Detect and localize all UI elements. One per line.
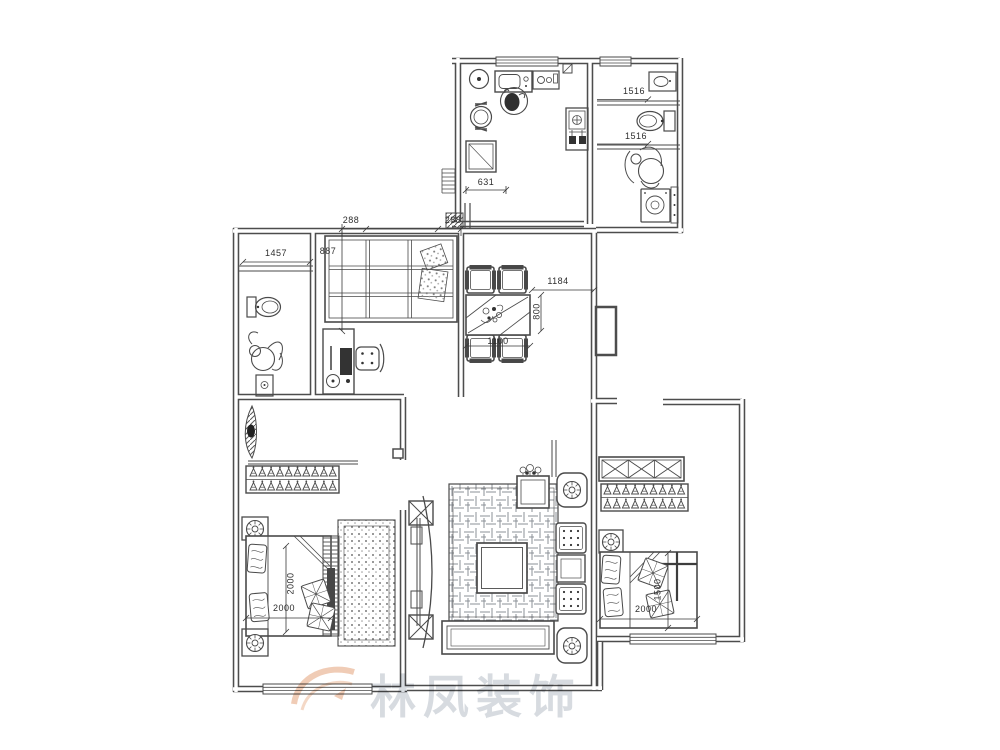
dim-label-bed-left-v: 2000 [286, 564, 297, 604]
tv-feature-wall [409, 496, 433, 648]
wardrobe-grid [325, 236, 457, 322]
side-table-plant [517, 465, 549, 509]
sofa [556, 523, 586, 614]
dining-chair [466, 266, 496, 294]
water-heater [566, 108, 588, 150]
dining-room [466, 266, 531, 363]
closet-hanger-rack [601, 484, 688, 511]
radiator [442, 169, 455, 193]
window-kitchen-top [496, 57, 558, 66]
dim-label-bed-right-length: 2000 [626, 604, 666, 615]
wardrobe-x-cabinet [599, 457, 684, 481]
tv-stand [442, 621, 554, 654]
dim-label-bath-top-lower: 1516 [608, 131, 664, 142]
lamp-icon [603, 534, 620, 551]
burner-icon [471, 102, 492, 131]
plush-toy [418, 268, 448, 301]
toilet-icon [247, 297, 281, 317]
pillow [603, 587, 623, 616]
dim-label-kitchen-door: 631 [468, 177, 504, 188]
door-jamb-notch [393, 449, 403, 458]
plant-icon [520, 465, 541, 477]
dim-label-bath-top-upper: 1516 [606, 86, 662, 97]
dim-label-wardrobe-depth: 887 [314, 246, 342, 257]
double-bed [600, 552, 697, 628]
shower-person-figure [625, 147, 663, 188]
dining-chair [498, 266, 528, 294]
pipe-shaft-niche [596, 307, 616, 355]
bathroom-middle [247, 297, 282, 396]
lamp-icon [564, 638, 581, 655]
lamp-icon [564, 482, 581, 499]
dim-label-bed-left-h: 2000 [264, 603, 304, 614]
window-bedroom-right [630, 634, 716, 644]
coffee-table [477, 543, 527, 593]
dim-label-dining-width: 1184 [534, 276, 582, 287]
door-leaf-hatched [245, 406, 256, 458]
sofa-end-table [557, 473, 587, 507]
bedroom-right [599, 457, 697, 628]
kitchen-counter-appliance [533, 71, 559, 89]
dim-label-pier-right: 288 [438, 215, 468, 226]
deco-pillow [307, 603, 335, 631]
study-room [323, 236, 457, 394]
door-pivot-marker [563, 64, 572, 73]
dim-label-bath-mid-width: 1457 [248, 248, 304, 259]
pillow [601, 555, 621, 584]
washing-machine [641, 189, 670, 222]
floor-plan: 631 1516 1516 1457 288 288 887 1184 800 … [0, 0, 1000, 750]
lamp-icon [247, 635, 264, 652]
dim-label-pier-left: 288 [336, 215, 366, 226]
nightstand [599, 530, 623, 553]
shower-person-figure [249, 332, 283, 371]
kitchen [466, 64, 588, 172]
toilet-icon [637, 111, 675, 131]
closet-hanger-rack [246, 466, 339, 493]
window-bath-top [600, 57, 631, 66]
living-room [409, 465, 587, 664]
dim-label-dining-clearance: 800 [532, 292, 543, 332]
kitchen-sink [495, 71, 532, 92]
area-rug [338, 520, 395, 646]
desk-chair [356, 344, 384, 372]
desk [323, 329, 354, 394]
bedroom-left [242, 406, 395, 656]
sofa-end-table [557, 628, 587, 663]
bathroom-cabinet [256, 375, 273, 396]
lamp-icon [247, 521, 264, 538]
refrigerator [466, 141, 496, 172]
floor-plan-drawing [0, 0, 1000, 750]
pillow [247, 544, 267, 573]
exhaust-fan-icon [470, 70, 489, 89]
dim-label-dining-table: 1100 [478, 336, 518, 347]
window-bedroom-left [263, 684, 372, 694]
dining-table [466, 295, 530, 335]
